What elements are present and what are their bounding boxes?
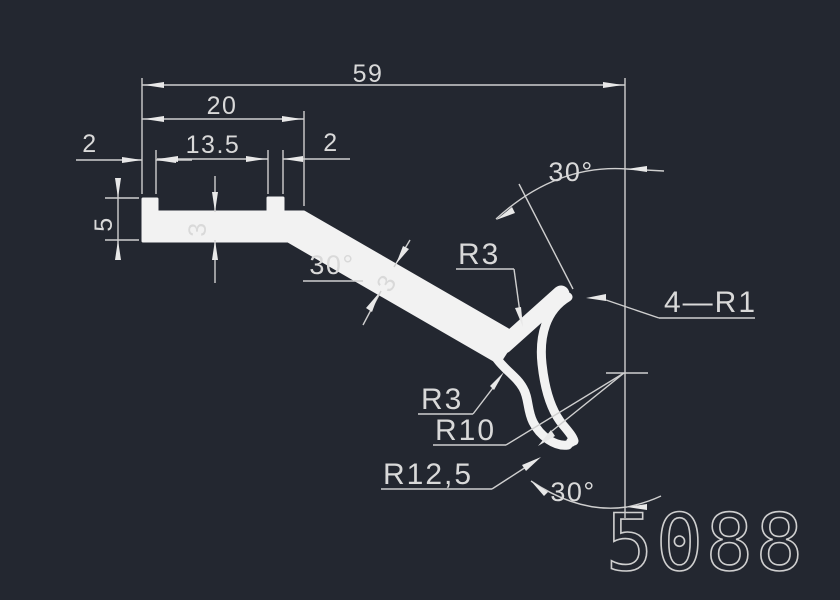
part-number: 5088 (606, 499, 806, 589)
profile-hook-tip (566, 437, 576, 447)
profile-concave-wall (541, 297, 574, 441)
cad-drawing-viewport: 59 20 13.5 2 2 5 3 3 30° 30° 30° R3 4—R1… (0, 0, 840, 600)
angle-30-slope-label: 30° (309, 250, 354, 280)
dim-3-floor-label: 3 (184, 221, 212, 236)
angle-30-top-label: 30° (548, 157, 593, 187)
radius-r3-lower-label: R3 (421, 383, 463, 416)
dim-13-5-label: 13.5 (186, 131, 241, 159)
radius-4-r1-label: 4—R1 (664, 286, 757, 319)
dim-2-right-label: 2 (323, 129, 338, 157)
dim-20-label: 20 (207, 92, 238, 120)
dim-59-label: 59 (353, 60, 384, 88)
profile-hook-wall (497, 359, 568, 445)
dim-2-left-label: 2 (82, 130, 97, 158)
radius-r10-label: R10 (435, 414, 496, 447)
radius-r12-5-label: R12,5 (383, 458, 473, 491)
angle-30-bottom-label: 30° (550, 477, 595, 507)
cad-canvas: 59 20 13.5 2 2 5 3 3 30° 30° 30° R3 4—R1… (0, 0, 840, 600)
dim-5-label: 5 (90, 216, 118, 231)
radius-r3-upper-label: R3 (458, 238, 500, 271)
